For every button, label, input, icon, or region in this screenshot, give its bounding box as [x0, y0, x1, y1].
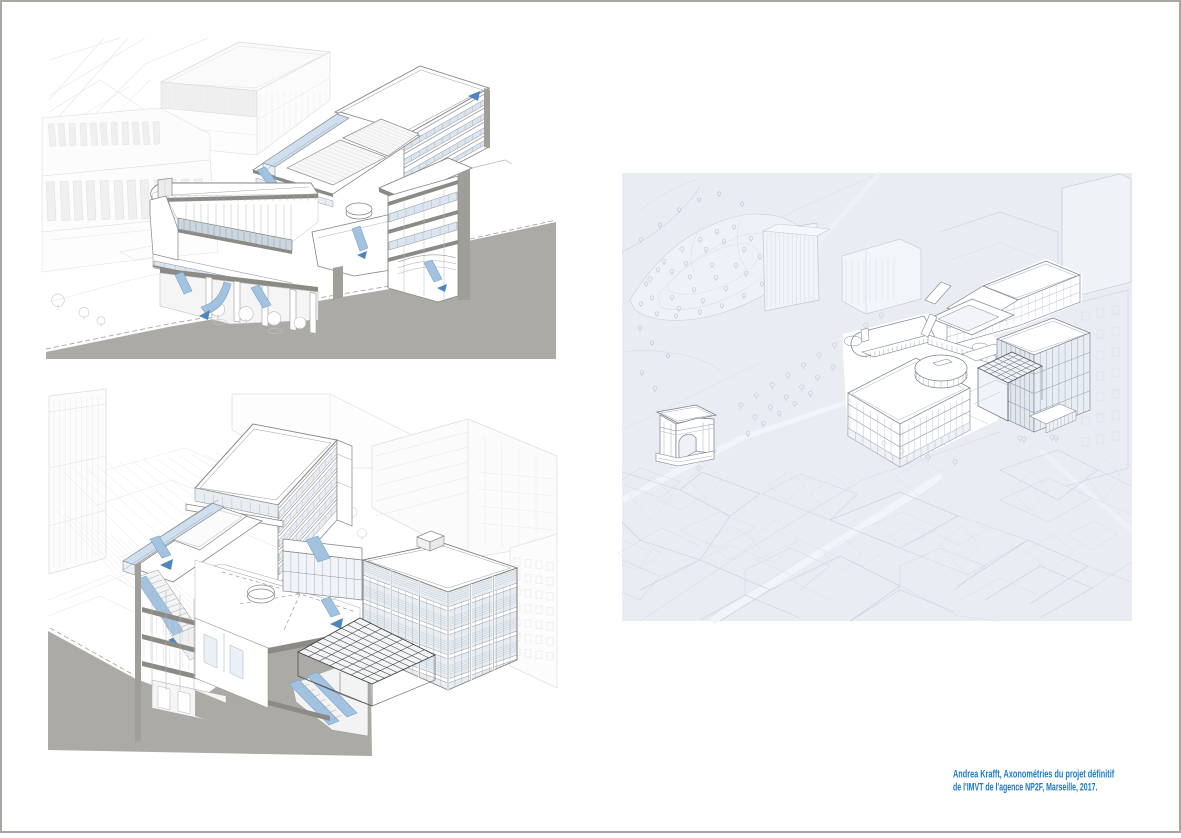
svg-text:Andrea Krafft, Axonométries du: Andrea Krafft, Axonométries du projet dé…: [953, 768, 1115, 780]
svg-text:de l'IMVT de l'agence NP2F, Ma: de l'IMVT de l'agence NP2F, Marseille, 2…: [953, 781, 1097, 793]
